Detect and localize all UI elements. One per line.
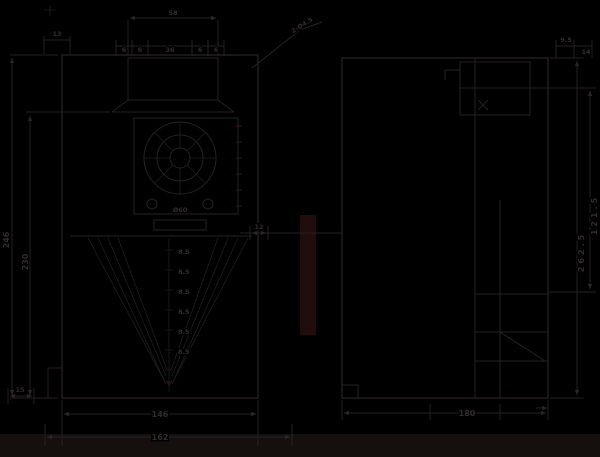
front-view (48, 55, 316, 398)
front-outline (62, 55, 258, 398)
top-left-dim (44, 36, 70, 54)
dim-front-top-0: 6 (122, 46, 127, 54)
side-outline (342, 58, 548, 398)
dim-step-1: 8.5 (178, 268, 190, 276)
dim-front-top-4: 6 (214, 46, 219, 54)
mic-hole-right (203, 199, 213, 209)
dim-front-top-3: 6 (198, 46, 203, 54)
dim-front-top-left: 13 (52, 30, 61, 38)
mic-hole-left (147, 199, 157, 209)
dim-side-height: 262.5 (577, 232, 586, 272)
side-lower-details (475, 294, 548, 361)
button-strip (154, 220, 206, 230)
v-apex-red-arrow (166, 381, 172, 387)
left-extension-lines (10, 55, 110, 398)
bracket-cross-mark (478, 100, 488, 110)
dim-step-2: 8.5 (178, 288, 190, 296)
dim-front-bottom-outer: 162 (152, 433, 169, 442)
dim-front-height-inner: 230 (21, 253, 30, 270)
dim-grille-diameter: Ø60 (173, 206, 188, 214)
v-pattern (88, 238, 248, 384)
corner-mark (44, 6, 56, 16)
side-right-extensions (530, 58, 596, 398)
dim-side-top-a: 9.5 (560, 36, 572, 44)
dim-front-bottom-inner: 146 (152, 410, 169, 419)
side-bottom-extensions (342, 400, 548, 420)
note-top-right: 2-Ø4.5 (290, 15, 315, 35)
dim-between-views: 12 (254, 223, 263, 231)
front-foot-step (48, 368, 62, 398)
dim-side-bottom-width: 180 (459, 409, 476, 418)
dim-front-bottom-left: 15 (15, 386, 25, 394)
dim-screen-width: 58 (168, 9, 178, 17)
technical-drawing: 6 6 36 6 6 13 58 246 230 Ø60 8.5 8.5 8.5… (0, 0, 600, 457)
dim-step-3: 8.5 (178, 308, 190, 316)
bracket-steps (445, 70, 530, 88)
screen-outline (128, 58, 218, 100)
dim-front-top-2: 36 (165, 46, 175, 54)
grille-red-ticks (236, 126, 242, 206)
drawing-canvas: 6 6 36 6 6 13 58 246 230 Ø60 8.5 8.5 8.5… (0, 0, 600, 457)
dim-front-top-1: 6 (138, 46, 143, 54)
dim-side-height-inner: 121.5 (590, 195, 599, 235)
side-view (342, 58, 548, 398)
dim-step-0: 8.5 (178, 248, 190, 256)
dim-front-height-outer: 246 (2, 231, 11, 248)
dim-side-top-b: 14 (581, 48, 591, 56)
screen-bezel (112, 100, 234, 112)
dim-step-5: 8.5 (178, 348, 190, 356)
side-foot-step (342, 385, 358, 398)
leader-line (252, 22, 322, 68)
dim-step-4: 8.5 (178, 328, 190, 336)
